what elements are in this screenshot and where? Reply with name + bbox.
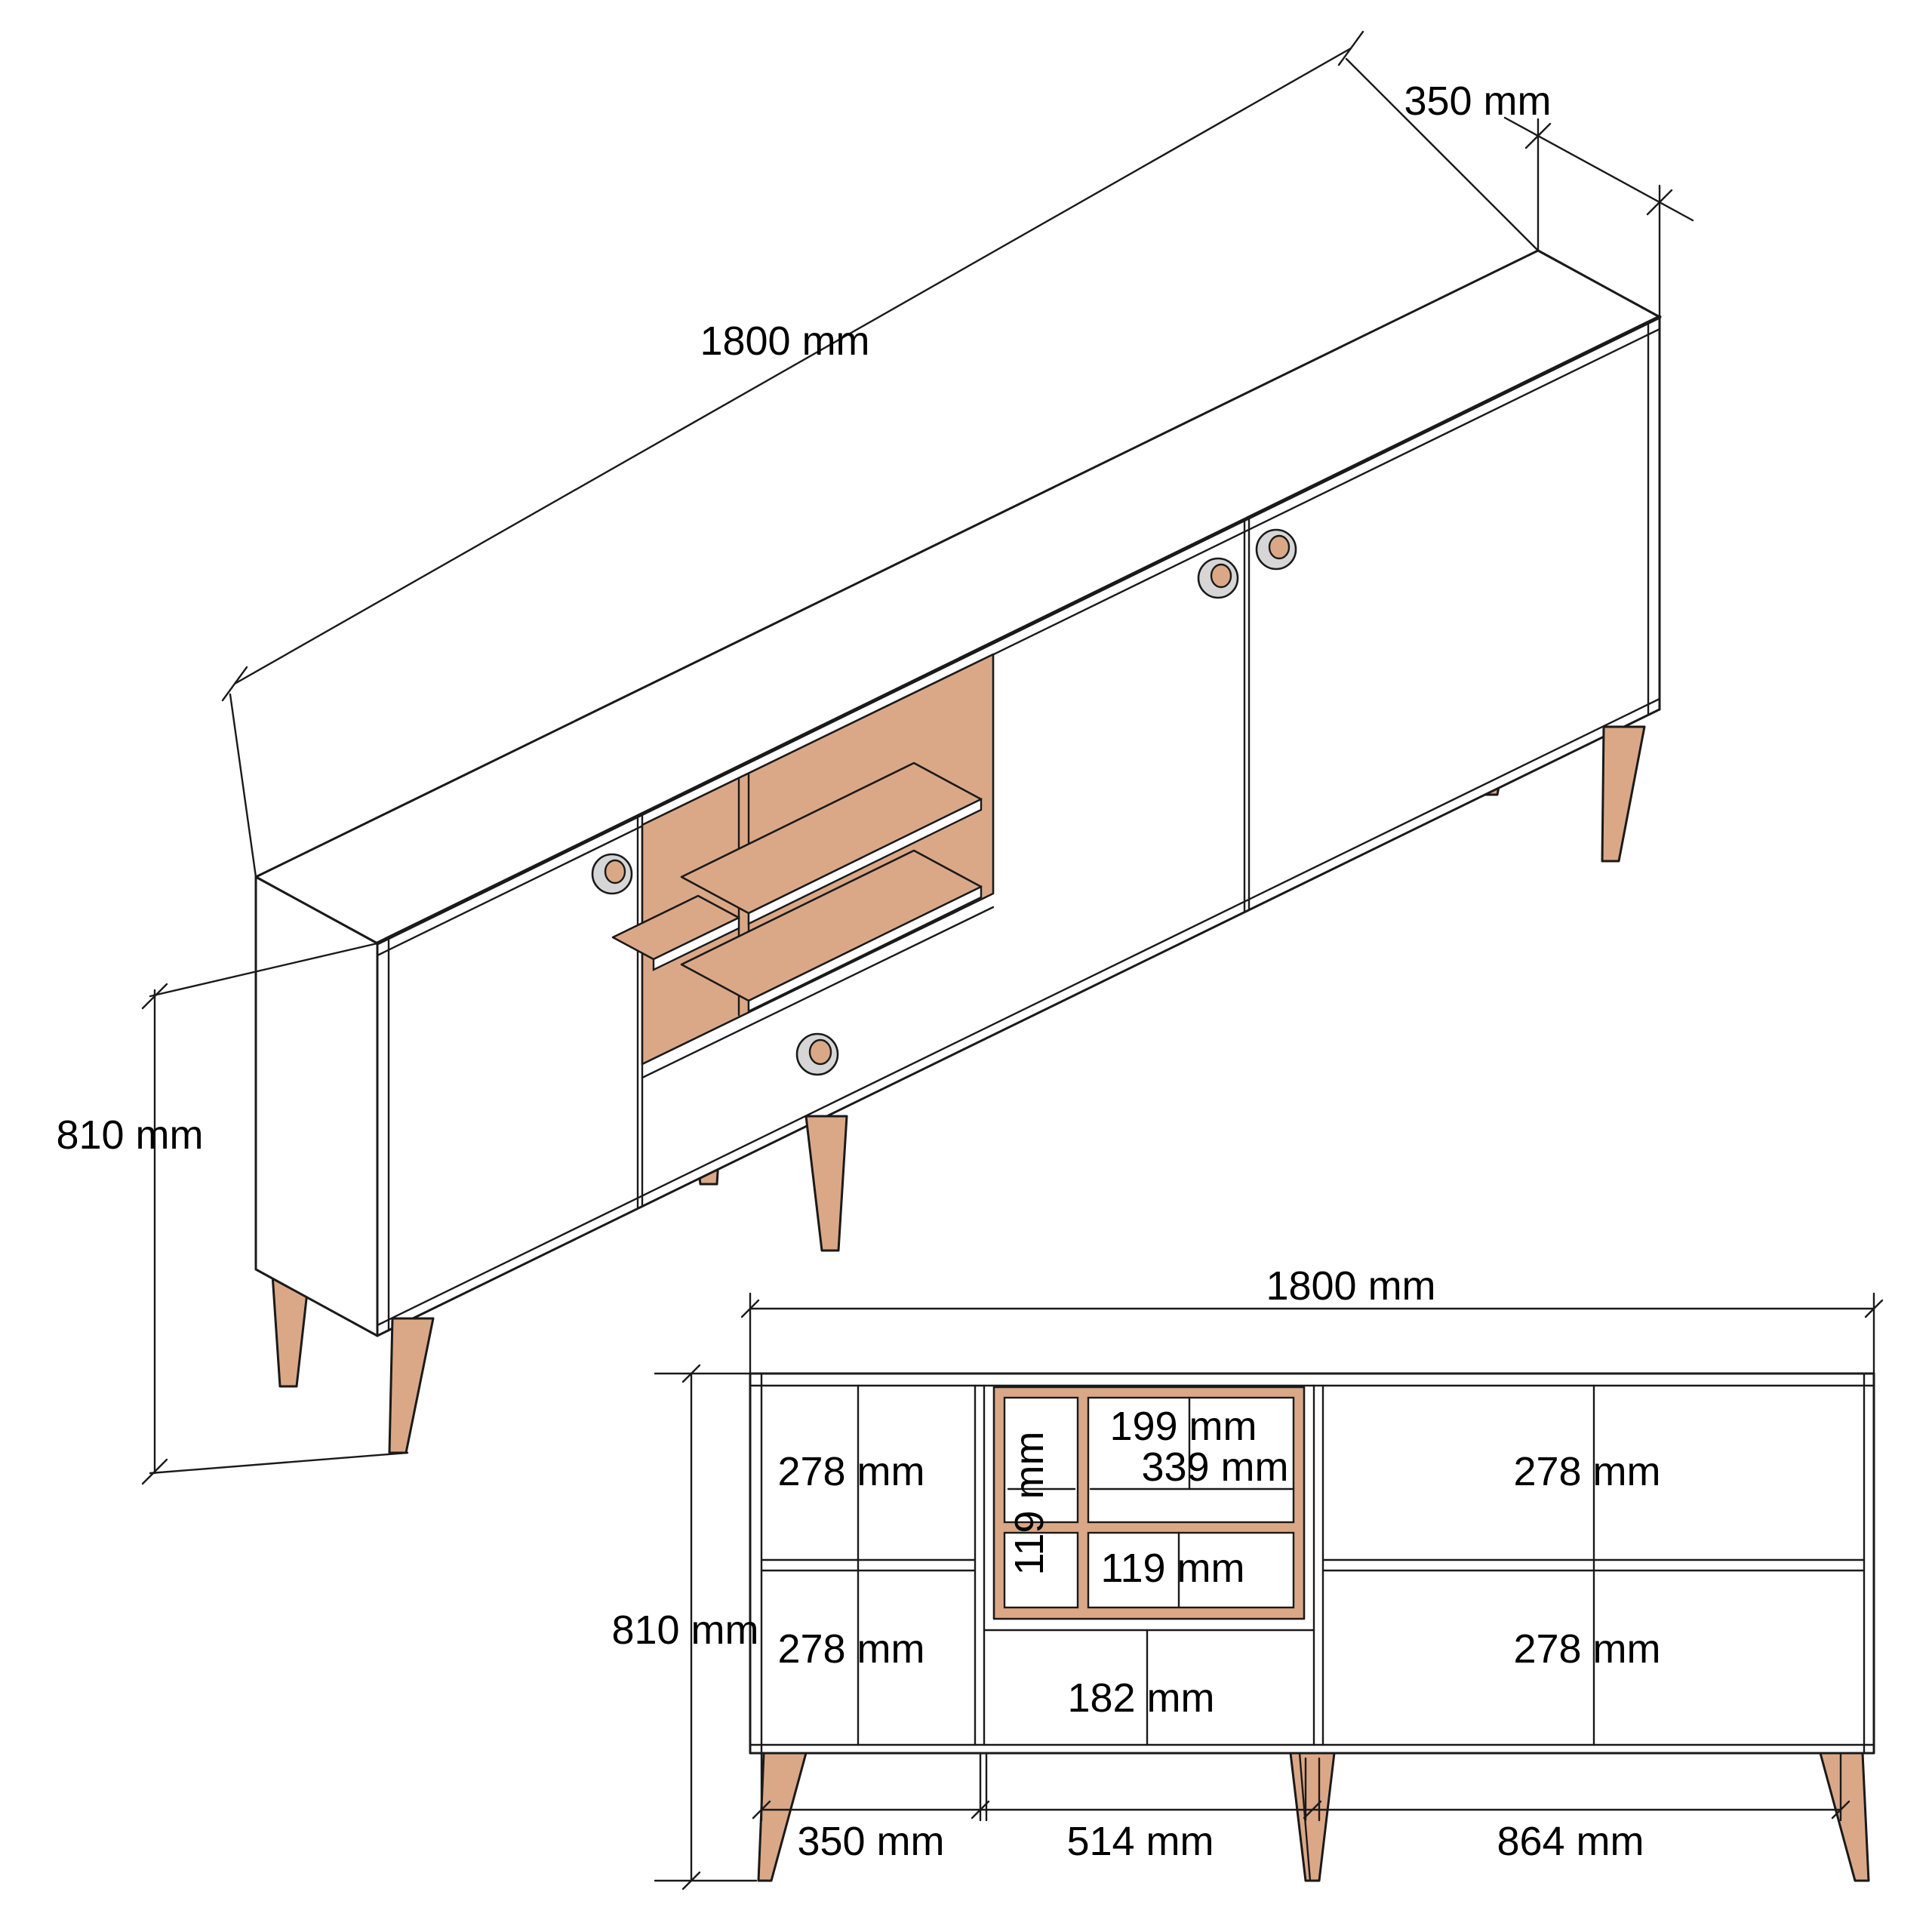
front-bottom-center-label: 514 mm <box>1066 1819 1214 1864</box>
front-view: 1800 mm 810 mm 350 mm 514 mm 864 <box>611 1263 1882 1889</box>
left-bottom-label: 278 mm <box>777 1626 924 1672</box>
niche-width-label: 339 mm <box>1141 1444 1288 1490</box>
leg <box>1291 1753 1334 1881</box>
left-top-label: 278 mm <box>777 1449 924 1494</box>
niche-top-height-label: 199 mm <box>1109 1404 1257 1449</box>
right-bottom-label: 278 mm <box>1513 1626 1660 1672</box>
drawer-height-label: 182 mm <box>1067 1675 1214 1721</box>
iso-depth-label: 350 mm <box>1404 78 1551 124</box>
technical-drawing-page: 1800 mm 350 mm 810 mm <box>0 0 1932 1932</box>
niche-column-width-label: 119 mm <box>1007 1431 1052 1575</box>
leg <box>1602 727 1644 861</box>
leg <box>806 1116 847 1251</box>
front-cabinet-outline <box>750 1374 1874 1753</box>
iso-width-label: 1800 mm <box>700 318 869 364</box>
front-bottom-left-label: 350 mm <box>797 1819 944 1864</box>
right-top-label: 278 mm <box>1513 1449 1660 1494</box>
front-width-dimension: 1800 mm <box>742 1263 1882 1374</box>
isometric-view: 1800 mm 350 mm 810 mm <box>56 32 1693 1484</box>
niche-bottom-height-label: 119 mm <box>1100 1546 1244 1591</box>
drawing-canvas: 1800 mm 350 mm 810 mm <box>0 0 1932 1932</box>
right-door-handle <box>1198 558 1238 598</box>
front-height-dimension: 810 mm <box>611 1365 758 1889</box>
right-door-handle <box>1257 530 1296 569</box>
leg <box>389 1318 433 1453</box>
front-width-label: 1800 mm <box>1266 1263 1435 1309</box>
leg <box>1820 1753 1869 1881</box>
left-door-handle <box>592 854 632 894</box>
iso-height-label: 810 mm <box>56 1112 203 1158</box>
drawer-handle <box>797 1034 838 1075</box>
front-bottom-right-label: 864 mm <box>1497 1819 1644 1864</box>
iso-left-side-face <box>256 877 377 1336</box>
front-height-label: 810 mm <box>611 1607 758 1653</box>
